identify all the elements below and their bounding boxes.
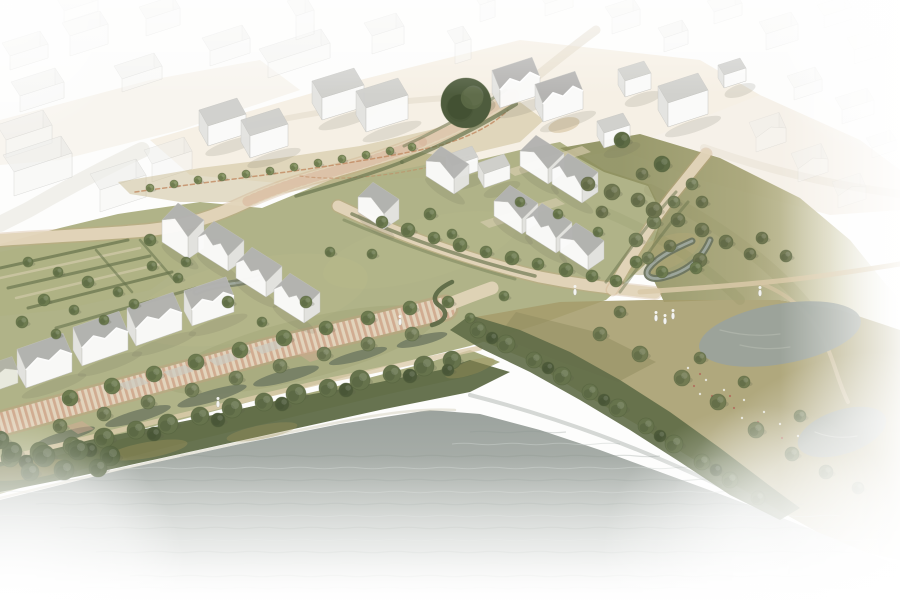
aerial-masterplan-rendering xyxy=(0,0,900,600)
masterplan-rendering-stage xyxy=(0,0,900,600)
